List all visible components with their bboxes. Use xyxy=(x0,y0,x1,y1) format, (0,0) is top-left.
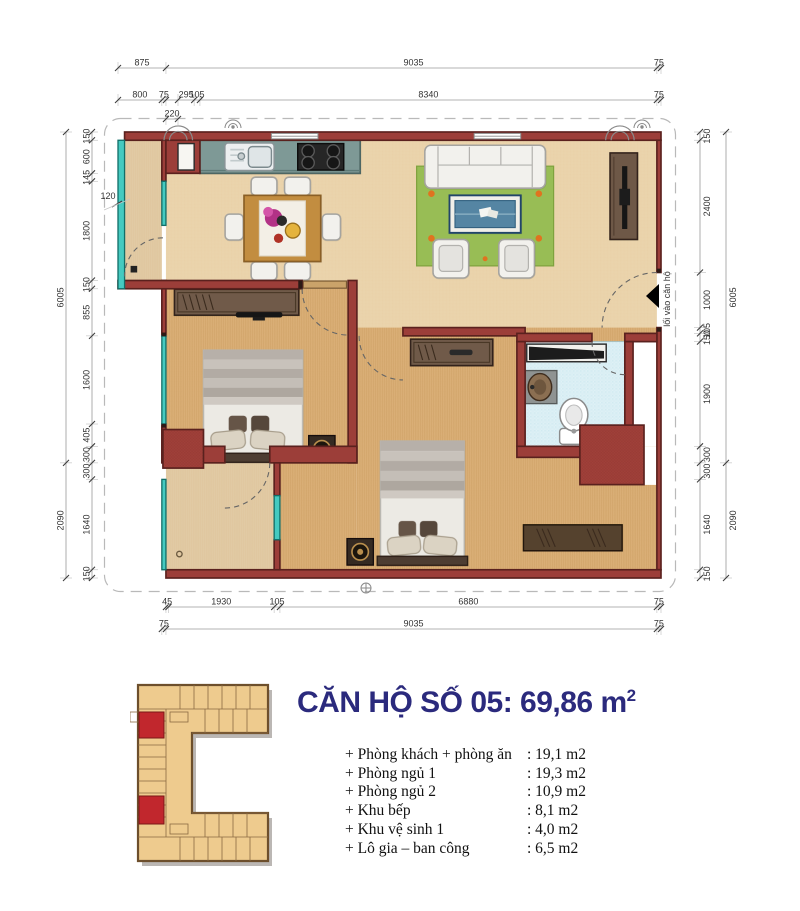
dining-chair xyxy=(251,177,277,195)
dim-label: 220 xyxy=(164,109,179,119)
shaft-area-2 xyxy=(644,446,657,485)
dim-label: 300 xyxy=(82,447,92,462)
blanket xyxy=(203,350,302,405)
dining-chair xyxy=(251,262,277,280)
list-item: + Phòng ngủ 2: 10,9 m2 xyxy=(345,783,586,802)
building-footprint xyxy=(130,676,280,876)
dim-label: 300 xyxy=(702,447,712,462)
bedroom-2-window xyxy=(162,336,166,424)
list-item: + Phòng khách + phòng ăn: 19,1 m2 xyxy=(345,746,586,765)
wall-bath-left xyxy=(517,342,525,447)
dim-label: 150 xyxy=(702,129,712,144)
shaft-hatched xyxy=(163,430,204,469)
wall-note-label: 120 xyxy=(100,191,115,201)
dim-label: 6005 xyxy=(728,287,738,307)
room-label: + Khu vệ sinh 1 xyxy=(345,821,527,840)
entrance-label: lối vào căn hộ xyxy=(662,271,672,327)
dim-label: 1640 xyxy=(702,515,712,535)
cushion xyxy=(251,416,269,433)
wall-loggia2-right-a xyxy=(274,463,280,496)
dim-label: 105 xyxy=(190,90,205,100)
cooktop xyxy=(298,144,344,170)
room-area-list: + Phòng khách + phòng ăn: 19,1 m2 + Phòn… xyxy=(345,746,586,858)
room-area: : 4,0 m2 xyxy=(527,821,578,840)
wall-bottom xyxy=(166,570,661,578)
dim-label: 150 xyxy=(702,566,712,581)
dim-label: 300 xyxy=(702,464,712,479)
room-area: : 6,5 m2 xyxy=(527,840,578,859)
dining-chair xyxy=(225,214,243,240)
wall-loggia2-right-b xyxy=(274,540,280,570)
room-area: : 8,1 m2 xyxy=(527,802,578,821)
dim-label: 1900 xyxy=(702,384,712,404)
wall-mid-band xyxy=(118,280,302,288)
dim-label: 9035 xyxy=(403,619,423,629)
room-area: : 19,1 m2 xyxy=(527,746,586,765)
wall-bath-top-a xyxy=(517,333,592,341)
dim-label: 2090 xyxy=(56,510,66,530)
pillow xyxy=(423,535,458,557)
bed xyxy=(200,350,306,462)
dim-label: 800 xyxy=(132,90,147,100)
dim-label: 6880 xyxy=(458,597,478,607)
pillow xyxy=(387,535,422,557)
room-label: + Phòng ngủ 2 xyxy=(345,783,527,802)
plan-drawing xyxy=(118,126,661,578)
dim-label: 75 xyxy=(159,90,169,100)
dim-label: 8340 xyxy=(418,90,438,100)
kitchen-window xyxy=(162,181,166,225)
loggia-2-window xyxy=(274,496,280,540)
room-area: : 19,3 m2 xyxy=(527,765,586,784)
dim-label: 855 xyxy=(82,305,92,320)
wall-top xyxy=(125,132,661,140)
dim-label: 9035 xyxy=(403,58,423,68)
highlighted-unit xyxy=(139,796,164,824)
tv-cabinet xyxy=(610,153,637,240)
room-area: : 10,9 m2 xyxy=(527,783,586,802)
dim-label: 75 xyxy=(159,619,169,629)
dim-label: 145 xyxy=(82,170,92,185)
dim-label: 1600 xyxy=(82,370,92,390)
dim-label: 105 xyxy=(270,597,285,607)
list-item: + Phòng ngủ 1: 19,3 m2 xyxy=(345,765,586,784)
loggia-1-floor xyxy=(125,140,162,280)
title-superscript: 2 xyxy=(627,686,636,705)
bedroom-1-floor-strip xyxy=(280,463,357,570)
dim-label: 1800 xyxy=(82,221,92,241)
dim-label: 150 xyxy=(82,566,92,581)
sofa xyxy=(425,145,546,188)
coffee-table xyxy=(449,195,520,232)
wall-bath-bottom xyxy=(517,446,580,457)
bed xyxy=(377,441,467,565)
wall-bedroom2-bottom-b xyxy=(270,446,357,463)
room-label: + Lô gia – ban công xyxy=(345,840,527,859)
nightstand xyxy=(347,539,373,565)
tv xyxy=(236,312,283,317)
dim-label: 150 xyxy=(702,330,712,345)
room-label: + Khu bếp xyxy=(345,802,527,821)
small-bowl xyxy=(274,234,283,243)
kitchen-sink xyxy=(225,143,274,171)
wardrobe xyxy=(174,289,298,320)
wall-bedroom2-right xyxy=(348,280,357,462)
shaft-hatched xyxy=(580,425,644,485)
highlighted-unit xyxy=(139,712,164,738)
door-leaf xyxy=(303,281,346,288)
armchair-seat xyxy=(439,245,463,271)
dim-label: 45 xyxy=(162,597,172,607)
headboard xyxy=(377,556,467,565)
dim-label: 405 xyxy=(82,428,92,443)
wall-bedroom1-top xyxy=(403,328,525,336)
dim-label: 875 xyxy=(134,58,149,68)
dim-label: 1930 xyxy=(211,597,231,607)
dim-label: 6005 xyxy=(56,287,66,307)
dim-label: 75 xyxy=(654,90,664,100)
dim-label: 1640 xyxy=(82,515,92,535)
dim-label: 75 xyxy=(654,597,664,607)
loggia-2-glass xyxy=(162,479,166,569)
dim-label: 150 xyxy=(82,129,92,144)
wall-right-lower xyxy=(657,328,661,570)
list-item: + Khu bếp: 8,1 m2 xyxy=(345,802,586,821)
dining-chair xyxy=(285,177,311,195)
dim-label: 600 xyxy=(82,149,92,164)
blanket xyxy=(380,441,464,498)
floor-plan: 8759035758007529510583407522045193010568… xyxy=(0,0,800,660)
page: 8759035758007529510583407522045193010568… xyxy=(0,0,800,911)
dim-label: 75 xyxy=(654,58,664,68)
wall-right-upper xyxy=(657,140,661,272)
dim-label: 2400 xyxy=(702,196,712,216)
bathroom-sink xyxy=(525,371,557,404)
dim-label: 75 xyxy=(654,619,664,629)
room-label: + Phòng ngủ 1 xyxy=(345,765,527,784)
cushion xyxy=(420,521,438,537)
dim-label: 2090 xyxy=(728,510,738,530)
living-set xyxy=(417,145,554,278)
list-item: + Khu vệ sinh 1: 4,0 m2 xyxy=(345,821,586,840)
cushion xyxy=(399,521,417,537)
kitchen-counter xyxy=(200,140,360,173)
page-title: CĂN HỘ SỐ 05: 69,86 m2 xyxy=(297,686,777,720)
wardrobe xyxy=(411,339,493,365)
dining-chair xyxy=(285,262,311,280)
building-outline xyxy=(138,685,268,861)
loggia-item xyxy=(131,266,138,273)
dim-label: 1000 xyxy=(702,290,712,310)
wall-bath-top-b xyxy=(625,333,657,341)
bench xyxy=(523,525,622,551)
dim-label: 300 xyxy=(82,464,92,479)
dining-chair xyxy=(322,214,340,240)
kitchen-niche xyxy=(178,144,194,170)
armchair-seat xyxy=(505,245,529,271)
list-item: + Lô gia – ban công: 6,5 m2 xyxy=(345,840,586,859)
loggia-1-glass xyxy=(118,140,125,288)
dim-label: 150 xyxy=(82,277,92,292)
room-label: + Phòng khách + phòng ăn xyxy=(345,746,527,765)
fruit-bowl xyxy=(285,223,300,238)
